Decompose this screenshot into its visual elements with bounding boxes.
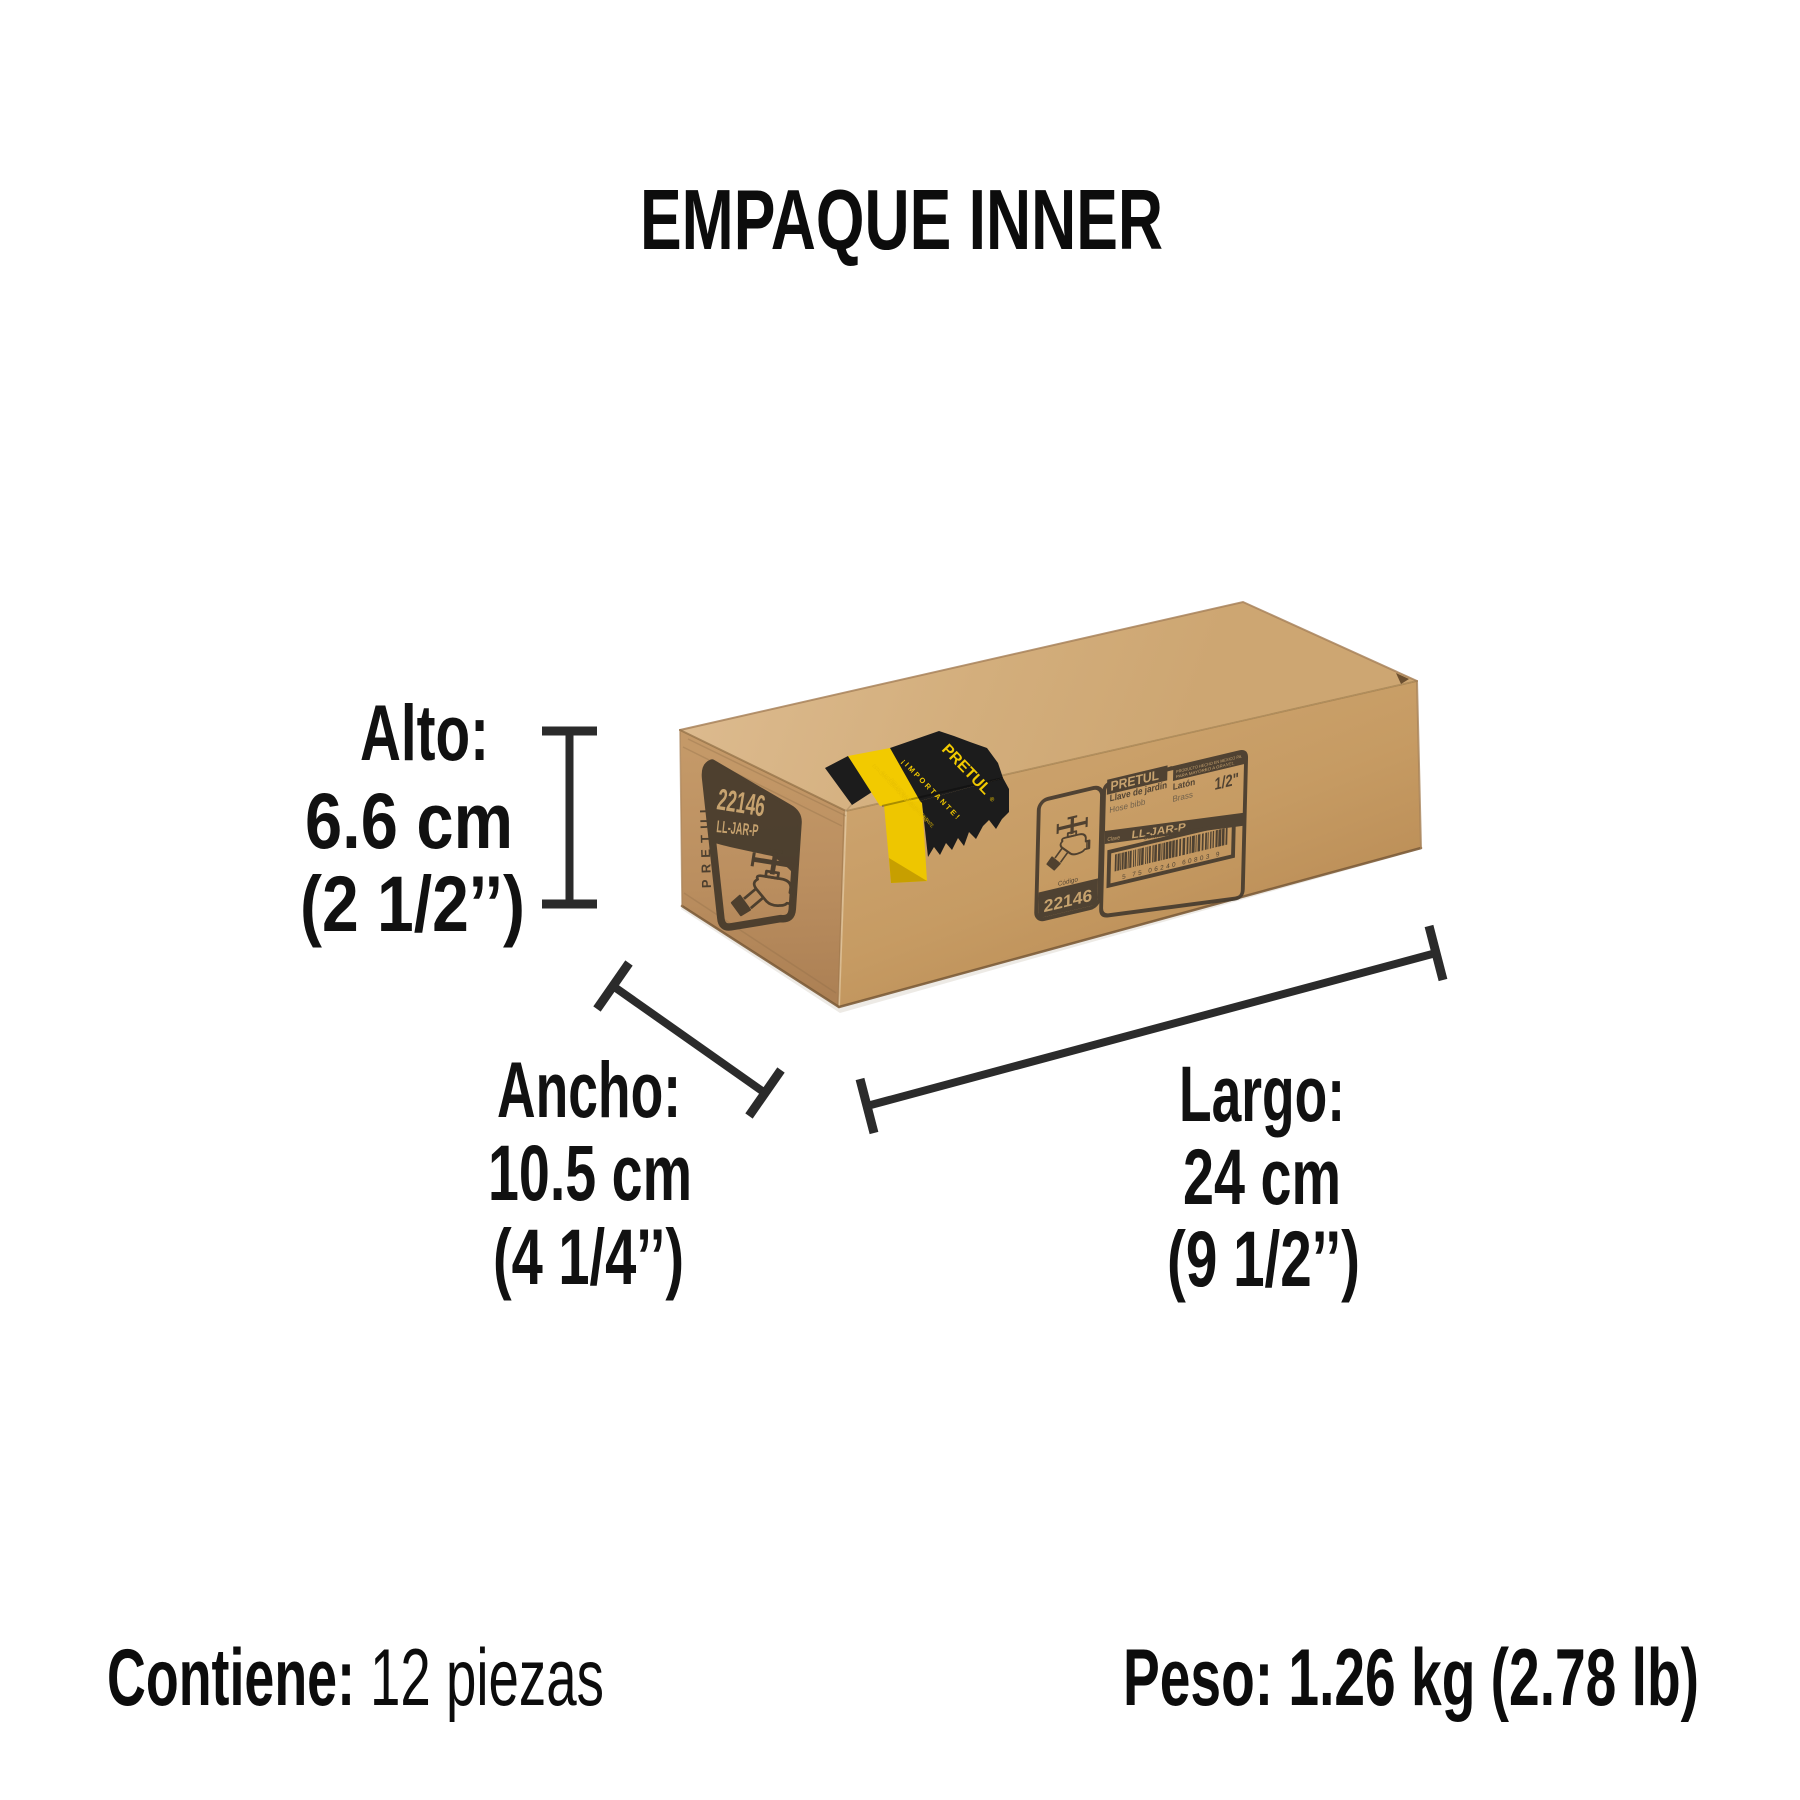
- svg-text:12 piezas: 12 piezas: [370, 1633, 604, 1723]
- svg-text:Contiene:: Contiene:: [107, 1633, 355, 1723]
- svg-text:EMPAQUE INNER: EMPAQUE INNER: [640, 173, 1163, 268]
- svg-text:6.6 cm: 6.6 cm: [305, 776, 513, 865]
- svg-text:(9 1/2’’): (9 1/2’’): [1167, 1214, 1360, 1303]
- svg-text:Alto:: Alto:: [360, 688, 489, 777]
- svg-text:(4 1/4’’): (4 1/4’’): [493, 1212, 684, 1301]
- svg-text:(2 1/2’’): (2 1/2’’): [300, 859, 525, 948]
- svg-text:10.5 cm: 10.5 cm: [488, 1128, 692, 1217]
- svg-text:24 cm: 24 cm: [1183, 1132, 1341, 1221]
- svg-text:Ancho:: Ancho:: [497, 1045, 681, 1134]
- svg-text:Largo:: Largo:: [1179, 1049, 1345, 1138]
- svg-text:®: ®: [1169, 764, 1173, 772]
- svg-text:Peso: 1.26 kg (2.78 lb): Peso: 1.26 kg (2.78 lb): [1123, 1633, 1699, 1723]
